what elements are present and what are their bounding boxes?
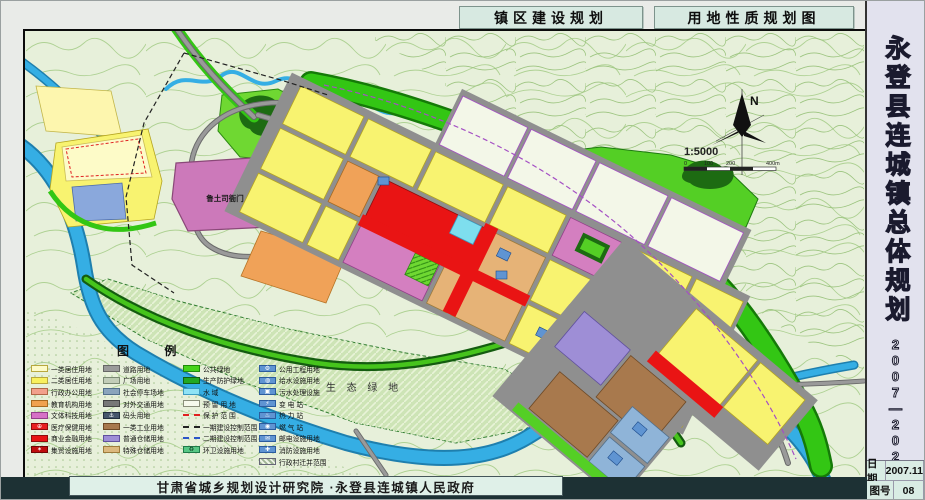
planning-sheet: 镇区建设规划 用地性质规划图 (0, 0, 925, 500)
legend-swatch (183, 414, 200, 416)
legend-label: 特殊仓储用地 (123, 445, 164, 455)
legend-swatch (103, 388, 120, 395)
legend-swatch: ▣ (259, 388, 276, 395)
legend-item: ⚙公用工程用地 (259, 363, 343, 375)
legend-swatch (183, 426, 200, 428)
sheet-title-left: 镇区建设规划 (459, 6, 643, 29)
legend-label: 一类工业用地 (123, 422, 164, 432)
sheet-info-table: 日期 2007.11 图号 08 (867, 460, 924, 500)
legend-label: 集贸设施用地 (51, 445, 92, 455)
legend-swatch: ⊕ (31, 423, 48, 430)
legend-label: 文体科技用地 (51, 410, 92, 420)
legend-swatch (103, 423, 120, 430)
legend-item: 保 护 范 围 (183, 409, 259, 421)
legend-swatch (31, 365, 48, 372)
legend-label: 邮电设施用地 (279, 433, 320, 443)
legend-swatch (259, 458, 276, 465)
legend-label: 生产防护绿地 (203, 375, 244, 385)
legend-item: ♨热 力 站 (259, 409, 343, 421)
legend-column: ⚙公用工程用地◍给水设施用地▣污水处理设施⚡变 电 站♨热 力 站◉燃 气 站✉… (259, 363, 343, 467)
legend-item: ✚消防设施用地 (259, 444, 343, 456)
legend-swatch (31, 377, 48, 384)
legend-swatch: ♻ (183, 446, 200, 453)
legend-item: ◍给水设施用地 (259, 375, 343, 387)
legend-swatch (183, 377, 200, 384)
legend-item: ⚓码头用地 (103, 409, 183, 421)
legend-item: 公共绿地 (183, 363, 259, 375)
legend-swatch (31, 388, 48, 395)
legend-item: 行政办公用地 (31, 386, 103, 398)
legend-swatch: ⚓ (103, 412, 120, 419)
legend-column: 道路用地广场用地社会停车场地对外交通用地⚓码头用地一类工业用地普通仓储用地特殊仓… (103, 363, 183, 467)
legend-swatch: ◉ (259, 423, 276, 430)
scale-tick: 200 (726, 161, 735, 167)
legend-swatch (183, 437, 200, 439)
legend-item: 广场用地 (103, 375, 183, 387)
plan-title-vertical: 永登县连城镇总体规划 (882, 35, 909, 325)
legend-label: 普通仓储用地 (123, 433, 164, 443)
legend-item: ♻环卫设施用地 (183, 444, 259, 456)
legend-swatch: ♨ (259, 412, 276, 419)
legend-item: ⚡变 电 站 (259, 398, 343, 410)
historic-site-label: 鲁土司衙门 (206, 193, 244, 203)
legend-label: 一期建设控制范围 (203, 422, 257, 432)
legend-item: 一类居住用地 (31, 363, 103, 375)
legend-item: 一类工业用地 (103, 421, 183, 433)
legend-item: 普通仓储用地 (103, 433, 183, 445)
legend-label: 商业金融用地 (51, 433, 92, 443)
legend-label: 二期建设控制范围 (203, 433, 257, 443)
legend-label: 教育机构用地 (51, 399, 92, 409)
legend-label: 保 护 范 围 (203, 410, 236, 420)
legend-swatch (103, 365, 120, 372)
legend-label: 广场用地 (123, 375, 150, 385)
scale-tick: 100 (704, 161, 713, 167)
legend-swatch (31, 400, 48, 407)
legend-label: 行政村迁并范围 (279, 457, 327, 467)
credit-bar: 甘肃省城乡规划设计研究院 ·永登县连城镇人民政府 (69, 476, 563, 496)
sheet-number-label: 图号 (867, 481, 894, 500)
legend-item: 一期建设控制范围 (183, 421, 259, 433)
side-title-panel: 永登县连城镇总体规划 2007—2020 日期 2007.11 图号 08 (865, 1, 924, 500)
legend-swatch (31, 435, 48, 442)
legend-label: 行政办公用地 (51, 387, 92, 397)
sheet-number-value: 08 (894, 481, 924, 500)
legend-item: 对外交通用地 (103, 398, 183, 410)
sheet-title-right: 用地性质规划图 (654, 6, 854, 29)
legend-item: 教育机构用地 (31, 398, 103, 410)
legend-column: 一类居住用地二类居住用地行政办公用地教育机构用地文体科技用地⊕医疗保健用地商业金… (31, 363, 103, 467)
legend-label: 社会停车场地 (123, 387, 164, 397)
legend-label: 消防设施用地 (279, 445, 320, 455)
legend-label: 给水设施用地 (279, 375, 320, 385)
scale-ratio: 1:5000 (684, 146, 718, 158)
legend-columns: 一类居住用地二类居住用地行政办公用地教育机构用地文体科技用地⊕医疗保健用地商业金… (31, 363, 343, 467)
legend-label: 水 域 (203, 387, 218, 397)
legend-item: 水 域 (183, 386, 259, 398)
legend-swatch (183, 400, 200, 407)
date-row: 日期 2007.11 (867, 461, 924, 481)
legend-label: 公共绿地 (203, 364, 230, 374)
legend-item: 商业金融用地 (31, 433, 103, 445)
legend-swatch: ✉ (259, 435, 276, 442)
sheet-number-row: 图号 08 (867, 481, 924, 500)
date-label: 日期 (867, 461, 886, 480)
legend-label: 环卫设施用地 (203, 445, 244, 455)
legend-swatch (103, 435, 120, 442)
legend-item: 生产防护绿地 (183, 375, 259, 387)
scale-tick: 0 (684, 161, 687, 167)
legend-item: ⊕医疗保健用地 (31, 421, 103, 433)
legend-swatch (183, 365, 200, 372)
scale-tick: 400m (766, 161, 780, 167)
legend-label: 污水处理设施 (279, 387, 320, 397)
legend-swatch (103, 400, 120, 407)
legend-item: 行政村迁并范围 (259, 456, 343, 468)
legend-label: 二类居住用地 (51, 375, 92, 385)
legend-item: 特殊仓储用地 (103, 444, 183, 456)
legend-item: 预 留 用 地 (183, 398, 259, 410)
legend-label: 医疗保健用地 (51, 422, 92, 432)
legend-label: 对外交通用地 (123, 399, 164, 409)
legend-label: 预 留 用 地 (203, 399, 236, 409)
legend-item: ✶集贸设施用地 (31, 444, 103, 456)
legend-item: 社会停车场地 (103, 386, 183, 398)
legend-item: ◉燃 气 站 (259, 421, 343, 433)
legend-label: 一类居住用地 (51, 364, 92, 374)
legend-label: 公用工程用地 (279, 364, 320, 374)
legend-swatch: ⚙ (259, 365, 276, 372)
legend-swatch: ◍ (259, 377, 276, 384)
legend-item: 二期建设控制范围 (183, 433, 259, 445)
legend-column: 公共绿地生产防护绿地水 域预 留 用 地保 护 范 围一期建设控制范围二期建设控… (183, 363, 259, 467)
legend-label: 码头用地 (123, 410, 150, 420)
legend-swatch (103, 377, 120, 384)
legend-item: ▣污水处理设施 (259, 386, 343, 398)
legend-item: 文体科技用地 (31, 409, 103, 421)
date-value: 2007.11 (886, 461, 924, 480)
legend-label: 燃 气 站 (279, 422, 303, 432)
north-label: N (750, 94, 759, 108)
legend-item: 二类居住用地 (31, 375, 103, 387)
legend-label: 变 电 站 (279, 399, 303, 409)
legend: 图 例 一类居住用地二类居住用地行政办公用地教育机构用地文体科技用地⊕医疗保健用… (31, 342, 343, 467)
legend-swatch: ✚ (259, 446, 276, 453)
legend-item: 道路用地 (103, 363, 183, 375)
legend-swatch: ✶ (31, 446, 48, 453)
legend-swatch (31, 412, 48, 419)
legend-swatch (183, 388, 200, 395)
legend-label: 道路用地 (123, 364, 150, 374)
legend-title: 图 例 (117, 342, 343, 359)
legend-item: ✉邮电设施用地 (259, 433, 343, 445)
legend-swatch: ⚡ (259, 400, 276, 407)
legend-swatch (103, 446, 120, 453)
legend-label: 热 力 站 (279, 410, 303, 420)
